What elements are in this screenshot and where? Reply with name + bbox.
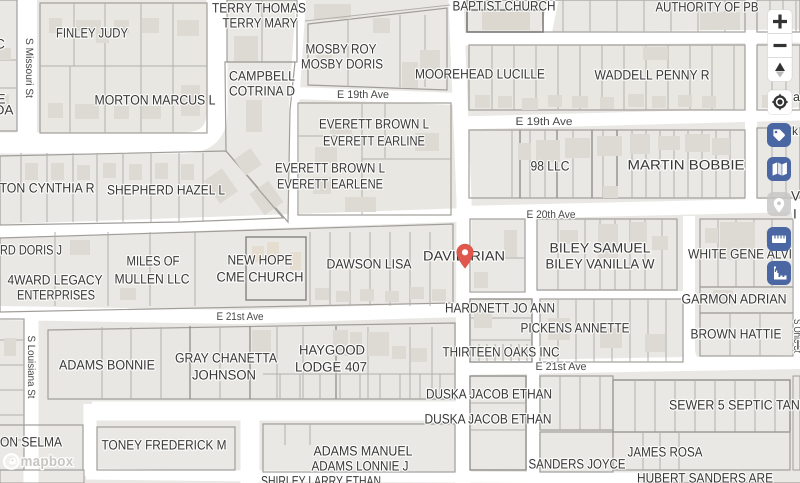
svg-text:LODGE 407: LODGE 407 (295, 360, 367, 375)
svg-text:E 21st Ave: E 21st Ave (217, 311, 264, 323)
svg-text:ENTERPRISES: ENTERPRISES (17, 288, 95, 303)
svg-text:BROWN HATTIE: BROWN HATTIE (691, 327, 782, 342)
svg-text:GRAY CHANETTA: GRAY CHANETTA (175, 351, 278, 366)
svg-text:SEWER 5 SEPTIC TANK A: SEWER 5 SEPTIC TANK A (669, 398, 800, 413)
svg-text:PICKENS ANNETTE: PICKENS ANNETTE (521, 321, 630, 336)
svg-text:ADAMS BONNIE: ADAMS BONNIE (59, 358, 155, 373)
svg-text:EVERETT BROWN L: EVERETT BROWN L (275, 161, 385, 176)
svg-text:EVERETT BROWN L: EVERETT BROWN L (319, 117, 429, 132)
svg-text:TON CYNTHIA R: TON CYNTHIA R (0, 181, 95, 196)
svg-text:mapbox: mapbox (21, 454, 75, 470)
svg-text:V: V (791, 189, 800, 204)
svg-text:HUBERT SANDERS ARE: HUBERT SANDERS ARE (637, 471, 773, 483)
svg-text:MOSBY DORIS: MOSBY DORIS (301, 57, 383, 72)
svg-text:TONEY FREDERICK M: TONEY FREDERICK M (102, 438, 227, 453)
svg-text:SHEPHERD HAZEL L: SHEPHERD HAZEL L (107, 183, 225, 198)
svg-text:I: I (796, 338, 800, 353)
svg-text:TERRY MARY: TERRY MARY (223, 16, 298, 31)
svg-text:SANDERS JOYCE: SANDERS JOYCE (529, 457, 626, 472)
svg-text:DUSKA JACOB ETHAN: DUSKA JACOB ETHAN (426, 387, 552, 402)
svg-text:ON SELMA: ON SELMA (0, 435, 63, 450)
svg-text:E 19th Ave: E 19th Ave (516, 116, 573, 128)
svg-text:JAMES ROSA: JAMES ROSA (628, 445, 704, 460)
svg-text:TERRY THOMAS: TERRY THOMAS (212, 1, 306, 16)
svg-text:WADDELL PENNY R: WADDELL PENNY R (595, 68, 710, 83)
svg-text:MOSBY ROY: MOSBY ROY (306, 42, 377, 57)
svg-text:DUSKA JACOB ETHAN: DUSKA JACOB ETHAN (425, 412, 552, 427)
svg-text:ADAMS LONNIE J: ADAMS LONNIE J (312, 459, 409, 474)
svg-text:FINLEY JUDY: FINLEY JUDY (56, 26, 128, 41)
svg-text:MULLEN LLC: MULLEN LLC (115, 272, 190, 287)
svg-text:CAMPBELL: CAMPBELL (229, 69, 295, 84)
svg-text:COTRINA D: COTRINA D (229, 84, 295, 99)
svg-text:DA: DA (0, 103, 14, 118)
svg-text:BILEY SAMUEL: BILEY SAMUEL (550, 241, 651, 256)
svg-text:S Louisiana St: S Louisiana St (25, 336, 37, 399)
svg-text:a: a (793, 90, 800, 104)
svg-text:JOHNSON: JOHNSON (192, 368, 256, 383)
svg-text:4WARD LEGACY: 4WARD LEGACY (8, 273, 103, 288)
svg-text:MARTIN BOBBIE: MARTIN BOBBIE (628, 158, 745, 173)
svg-text:HARDNETT JO ANN: HARDNETT JO ANN (445, 301, 555, 316)
svg-text:EVERETT EARLENE: EVERETT EARLENE (277, 177, 383, 192)
svg-text:CME CHURCH: CME CHURCH (217, 270, 304, 285)
svg-text:HAYGOOD: HAYGOOD (299, 343, 365, 358)
svg-text:GARMON ADRIAN: GARMON ADRIAN (682, 292, 787, 307)
svg-text:I: I (793, 207, 797, 222)
svg-text:BILEY VANILLA W: BILEY VANILLA W (546, 257, 655, 272)
svg-text:E 21st Ave: E 21st Ave (536, 361, 587, 373)
svg-text:RD DORIS J: RD DORIS J (0, 243, 62, 258)
svg-text:98 LLC: 98 LLC (531, 159, 570, 174)
svg-text:DAWSON LISA: DAWSON LISA (327, 257, 413, 272)
svg-text:E 19th Ave: E 19th Ave (337, 89, 389, 101)
svg-text:MOOREHEAD LUCILLE: MOOREHEAD LUCILLE (415, 67, 545, 82)
svg-text:MORTON MARCUS L: MORTON MARCUS L (95, 93, 216, 108)
svg-text:E 20th Ave: E 20th Ave (527, 209, 576, 221)
svg-text:ADAMS MANUEL: ADAMS MANUEL (314, 444, 413, 459)
svg-text:AUTHORITY OF PB: AUTHORITY OF PB (656, 0, 759, 15)
svg-text:THIRTEEN OAKS INC: THIRTEEN OAKS INC (443, 345, 560, 360)
svg-text:EVERETT EARLINE: EVERETT EARLINE (323, 134, 425, 149)
svg-text:BAPTIST CHURCH: BAPTIST CHURCH (453, 0, 556, 14)
svg-text:C: C (0, 37, 5, 52)
svg-text:SHIRLEY LARRY ETHAN: SHIRLEY LARRY ETHAN (261, 474, 381, 483)
svg-text:k: k (792, 124, 799, 138)
svg-text:S Missouri St: S Missouri St (23, 38, 35, 98)
svg-text:NEW HOPE: NEW HOPE (228, 253, 293, 268)
svg-text:MILES OF: MILES OF (127, 254, 180, 269)
